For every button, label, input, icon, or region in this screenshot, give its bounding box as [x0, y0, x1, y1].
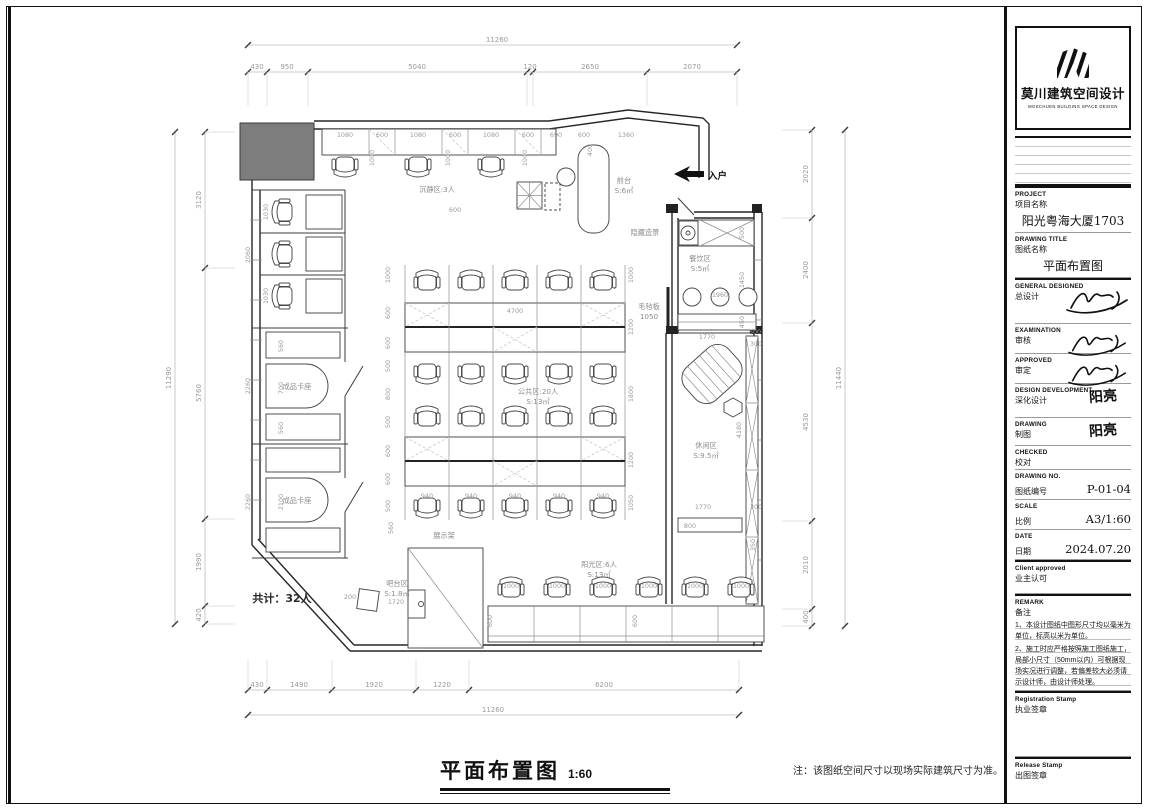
- svg-text:600: 600: [749, 328, 761, 336]
- svg-text:1000: 1000: [549, 582, 565, 590]
- drawing-sheet: 入户 1126043095050401202650207043014901920…: [0, 0, 1150, 812]
- svg-text:600: 600: [384, 307, 392, 319]
- svg-text:1000: 1000: [627, 267, 635, 283]
- svg-text:1000: 1000: [384, 267, 392, 283]
- svg-text:阳光区:6人: 阳光区:6人: [581, 560, 617, 569]
- svg-text:1200: 1200: [627, 452, 635, 468]
- date-value: 2024.07.20: [1065, 542, 1131, 556]
- svg-text:4530: 4530: [802, 413, 810, 431]
- svg-text:S:13㎡: S:13㎡: [587, 570, 610, 579]
- title-underline: [440, 788, 670, 791]
- svg-text:4700: 4700: [507, 307, 523, 315]
- svg-text:1030: 1030: [262, 204, 270, 220]
- svg-text:毛毡板: 毛毡板: [638, 302, 660, 311]
- company-name-en: MOKCHUEN BUILDING SPACE DESIGN: [1028, 104, 1118, 109]
- svg-text:1000: 1000: [733, 582, 749, 590]
- reception-counter: [578, 145, 609, 233]
- svg-text:1000: 1000: [641, 582, 657, 590]
- hidden-door: [545, 183, 560, 210]
- svg-text:1000: 1000: [595, 582, 611, 590]
- titleblock-release-stamp: Release Stamp 出图签章: [1015, 757, 1131, 812]
- svg-text:2260: 2260: [244, 378, 252, 394]
- handwritten-name: 阳亮: [1088, 385, 1117, 407]
- svg-text:1800: 1800: [627, 386, 635, 402]
- title-block: 莫川建筑空间设计 MOKCHUEN BUILDING SPACE DESIGN …: [1004, 6, 1137, 804]
- svg-text:公共区:20人: 公共区:20人: [518, 387, 558, 396]
- svg-text:2010: 2010: [802, 556, 810, 574]
- svg-text:500: 500: [384, 360, 392, 372]
- svg-text:450: 450: [738, 316, 746, 328]
- svg-text:S:5㎡: S:5㎡: [691, 264, 710, 273]
- svg-text:S:1.8㎡: S:1.8㎡: [384, 589, 410, 598]
- svg-text:5760: 5760: [195, 384, 203, 402]
- svg-text:1000: 1000: [687, 582, 703, 590]
- drawing-caption: 平面布置图 1:60: [440, 755, 670, 794]
- booth-shelf: [266, 528, 340, 552]
- svg-text:120: 120: [523, 63, 536, 71]
- svg-text:1770: 1770: [699, 333, 715, 341]
- signature: [1065, 286, 1131, 318]
- svg-text:3120: 3120: [195, 191, 203, 209]
- room-desk: [306, 279, 342, 313]
- titleblock-drawing-no: DRAWING NO. 图纸编号 P-01-04: [1015, 470, 1131, 500]
- svg-text:560: 560: [277, 340, 285, 352]
- svg-text:1080: 1080: [410, 131, 426, 139]
- svg-text:430: 430: [250, 681, 263, 689]
- svg-text:400: 400: [586, 144, 594, 156]
- svg-text:1220: 1220: [433, 681, 451, 689]
- svg-text:吧台区: 吧台区: [386, 579, 408, 588]
- drawing-number: P-01-04: [1087, 482, 1131, 496]
- svg-text:600: 600: [578, 131, 590, 139]
- company-name-cn: 莫川建筑空间设计: [1021, 83, 1125, 102]
- svg-text:1990: 1990: [195, 553, 203, 571]
- svg-text:800: 800: [684, 522, 696, 530]
- svg-text:1080: 1080: [337, 131, 353, 139]
- entry-label: 入户: [707, 170, 727, 182]
- svg-text:成品卡座: 成品卡座: [283, 496, 312, 505]
- svg-text:600: 600: [486, 615, 494, 627]
- svg-text:350: 350: [749, 539, 757, 551]
- floor-plan: 入户 1126043095050401202650207043014901920…: [0, 0, 1006, 812]
- room-desk: [306, 195, 342, 229]
- handwritten-name: 阳亮: [1088, 419, 1117, 441]
- titleblock-design-development: DESIGN DEVELOPMENT 深化设计 阳亮: [1015, 384, 1131, 418]
- svg-text:11260: 11260: [482, 706, 504, 714]
- svg-text:1050: 1050: [627, 495, 635, 511]
- svg-text:1000: 1000: [503, 582, 519, 590]
- svg-text:940: 940: [465, 492, 477, 500]
- svg-text:6200: 6200: [595, 681, 613, 689]
- svg-text:1720: 1720: [388, 598, 404, 606]
- svg-text:600: 600: [449, 131, 461, 139]
- titleblock-general-designed: GENERAL DESIGNED 总设计: [1015, 278, 1131, 324]
- dining-stool: [683, 288, 701, 306]
- svg-text:600: 600: [522, 131, 534, 139]
- svg-text:940: 940: [553, 492, 565, 500]
- svg-text:S:9.5㎡: S:9.5㎡: [693, 451, 719, 460]
- svg-text:600: 600: [384, 337, 392, 349]
- svg-text:940: 940: [597, 492, 609, 500]
- svg-text:420: 420: [195, 608, 203, 621]
- svg-text:500: 500: [738, 227, 746, 239]
- svg-text:500: 500: [384, 500, 392, 512]
- svg-text:11290: 11290: [165, 367, 173, 389]
- svg-text:2070: 2070: [683, 63, 701, 71]
- furniture: [266, 129, 764, 648]
- svg-text:600: 600: [449, 206, 461, 214]
- svg-text:1490: 1490: [290, 681, 308, 689]
- logo-icon: [1053, 48, 1093, 78]
- svg-text:950: 950: [280, 63, 293, 71]
- svg-text:2650: 2650: [581, 63, 599, 71]
- svg-text:1030: 1030: [262, 288, 270, 304]
- titleblock-examination: EXAMINATION 审核: [1015, 324, 1131, 354]
- svg-text:1450: 1450: [738, 272, 746, 288]
- project-name: 阳光粤海大厦1703: [1015, 212, 1131, 229]
- svg-text:1770: 1770: [695, 503, 711, 511]
- company-logo: 莫川建筑空间设计 MOKCHUEN BUILDING SPACE DESIGN: [1015, 26, 1131, 130]
- svg-text:成品卡座: 成品卡座: [283, 382, 312, 391]
- sheet-note: 注：该图纸空间尺寸以现场实际建筑尺寸为准。: [793, 762, 1003, 777]
- svg-text:600: 600: [376, 131, 388, 139]
- svg-text:1960: 1960: [712, 291, 728, 299]
- svg-text:隐藏造景: 隐藏造景: [631, 228, 660, 237]
- svg-text:200: 200: [344, 593, 356, 601]
- svg-text:1000: 1000: [444, 150, 452, 166]
- svg-text:300: 300: [750, 503, 762, 511]
- svg-text:600: 600: [631, 615, 639, 627]
- lounge-sofa: [676, 338, 749, 410]
- titleblock-drawing-title: DRAWING TITLE 图纸名称 平面布置图: [1015, 233, 1131, 278]
- titleblock-client-approved: Client approved 业主认可: [1015, 560, 1131, 594]
- dining-stool: [739, 288, 757, 306]
- drawing-title-value: 平面布置图: [1015, 257, 1131, 274]
- svg-text:共计：32人: 共计：32人: [252, 591, 312, 605]
- titleblock-date: DATE 日期 2024.07.20: [1015, 530, 1131, 560]
- remark-note: 1、本设计图纸中图形尺寸均以毫米为单位，标高以米为单位。: [1015, 618, 1131, 642]
- room-desk: [306, 237, 342, 271]
- svg-text:940: 940: [421, 492, 433, 500]
- svg-text:400: 400: [802, 610, 810, 623]
- svg-text:1000: 1000: [368, 150, 376, 166]
- svg-text:2400: 2400: [802, 261, 810, 279]
- revision-lines: [1015, 136, 1131, 186]
- titleblock-scale: SCALE 比例 A3/1:60: [1015, 500, 1131, 530]
- drawing-title: 平面布置图: [440, 755, 560, 785]
- svg-text:600: 600: [384, 473, 392, 485]
- titleblock-approved: APPROVED 审定: [1015, 354, 1131, 384]
- side-table: [724, 398, 742, 417]
- svg-text:5040: 5040: [408, 63, 426, 71]
- titleblock-project: PROJECT 项目名称 阳光粤海大厦1703: [1015, 186, 1131, 233]
- svg-text:2020: 2020: [802, 165, 810, 183]
- svg-text:1920: 1920: [365, 681, 383, 689]
- titleblock-drawing: DRAWING 制图 阳亮: [1015, 418, 1131, 446]
- svg-text:1050: 1050: [640, 312, 659, 321]
- titleblock-remark: REMARK 备注 1、本设计图纸中图形尺寸均以毫米为单位，标高以米为单位。 2…: [1015, 594, 1131, 691]
- svg-text:4180: 4180: [735, 422, 743, 438]
- svg-text:560: 560: [387, 522, 395, 534]
- bar-stool: [357, 589, 380, 612]
- svg-text:展示架: 展示架: [433, 531, 455, 540]
- reception-stool: [557, 168, 575, 186]
- svg-text:600: 600: [384, 445, 392, 457]
- titleblock-registration-stamp: Registration Stamp 执业签章: [1015, 691, 1131, 757]
- svg-text:前台: 前台: [617, 176, 631, 185]
- entry-marker: 入户: [674, 166, 727, 182]
- remark-note: 2、施工时应严格按照施工图纸施工，局部小尺寸（50mm以内）可根据现场实况进行调…: [1015, 642, 1131, 688]
- svg-text:800: 800: [384, 388, 392, 400]
- scale-value: A3/1:60: [1086, 512, 1131, 526]
- svg-text:300: 300: [750, 340, 762, 348]
- svg-text:1200: 1200: [627, 319, 635, 335]
- svg-text:1000: 1000: [521, 150, 529, 166]
- svg-text:S:13㎡: S:13㎡: [526, 397, 549, 406]
- titleblock-checked: CHECKED 校对: [1015, 446, 1131, 470]
- svg-text:560: 560: [277, 422, 285, 434]
- svg-text:S:6㎡: S:6㎡: [615, 186, 634, 195]
- booth-shelf: [266, 448, 340, 472]
- svg-text:11440: 11440: [835, 367, 843, 389]
- svg-text:2060: 2060: [244, 247, 252, 263]
- drawing-scale: 1:60: [568, 767, 592, 781]
- svg-text:11260: 11260: [486, 36, 508, 44]
- svg-text:餐饮区: 餐饮区: [689, 254, 711, 263]
- svg-text:940: 940: [509, 492, 521, 500]
- svg-text:2260: 2260: [244, 494, 252, 510]
- svg-text:1360: 1360: [618, 131, 634, 139]
- svg-text:430: 430: [250, 63, 263, 71]
- svg-text:沉静区:3人: 沉静区:3人: [419, 185, 455, 194]
- svg-text:690: 690: [550, 131, 562, 139]
- svg-text:休闲区: 休闲区: [695, 441, 717, 450]
- svg-text:500: 500: [384, 416, 392, 428]
- svg-text:1080: 1080: [483, 131, 499, 139]
